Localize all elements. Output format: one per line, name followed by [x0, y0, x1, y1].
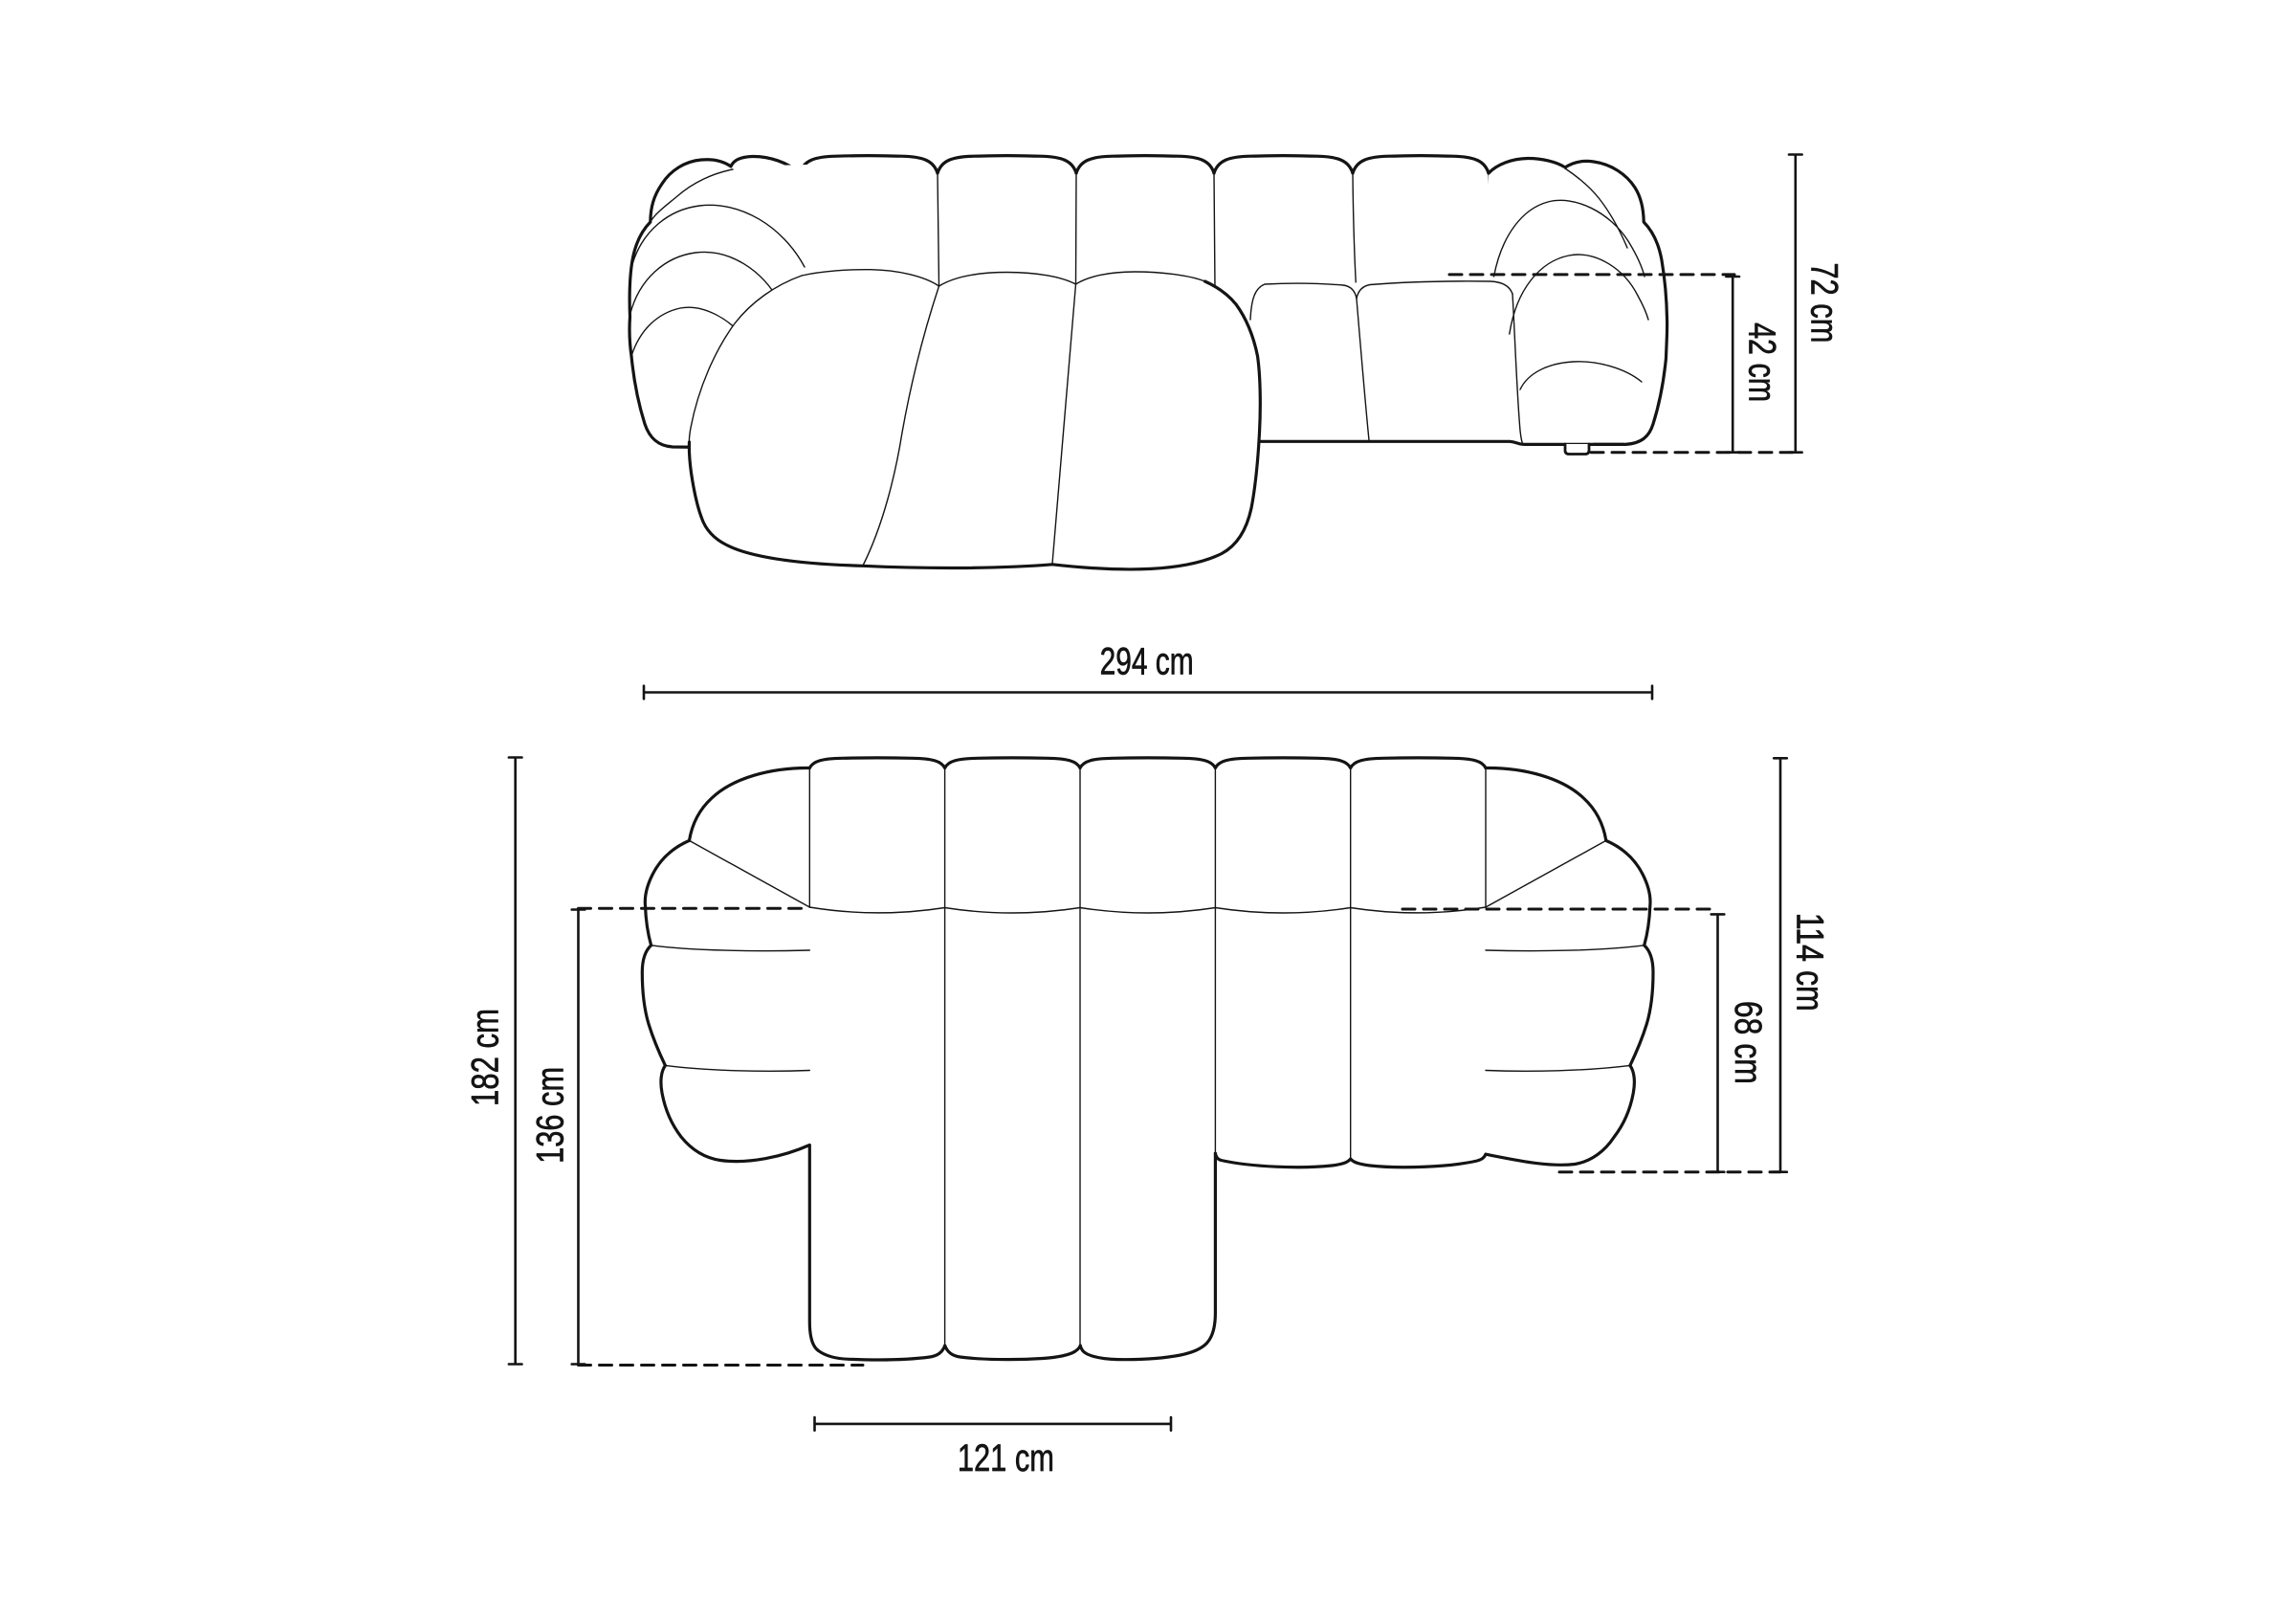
svg-text:294 cm: 294 cm: [1100, 641, 1194, 683]
svg-text:182 cm: 182 cm: [465, 1009, 507, 1106]
svg-text:136 cm: 136 cm: [530, 1067, 572, 1164]
svg-text:42 cm: 42 cm: [1741, 322, 1783, 402]
svg-text:121 cm: 121 cm: [958, 1437, 1054, 1479]
svg-text:114 cm: 114 cm: [1789, 913, 1831, 1012]
svg-text:68 cm: 68 cm: [1727, 1001, 1769, 1084]
svg-text:72 cm: 72 cm: [1803, 262, 1845, 343]
